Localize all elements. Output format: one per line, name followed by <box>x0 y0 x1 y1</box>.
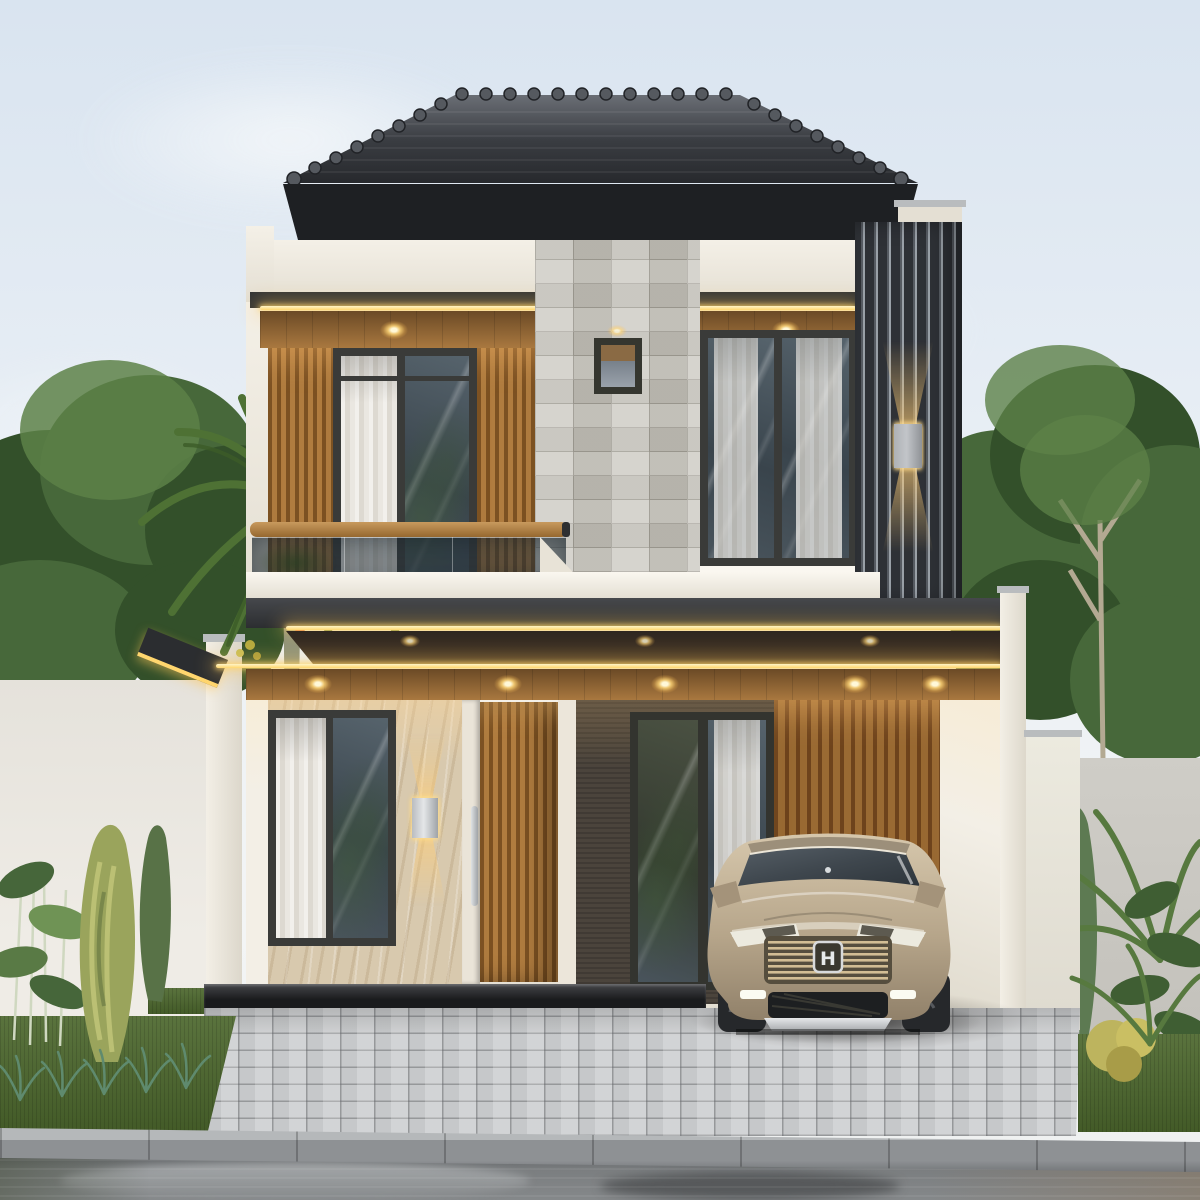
downlight <box>917 672 953 696</box>
mirror-glint <box>825 867 831 873</box>
downlight <box>647 672 683 696</box>
downlight <box>376 318 412 342</box>
left-pillar-cap <box>203 634 245 642</box>
emblem-letter: H <box>820 948 836 970</box>
downlight <box>857 633 883 649</box>
sheer-curtain <box>796 338 842 558</box>
window-1f <box>268 710 396 946</box>
right-lawn-bed <box>1078 1034 1200 1132</box>
low-wall-cap <box>1024 730 1082 737</box>
downlight <box>837 672 873 696</box>
bumper-shadow <box>736 1029 920 1035</box>
led-strip-lower-canopy <box>216 664 1002 668</box>
sheer-curtain <box>714 338 758 558</box>
sheer-curtain <box>276 718 330 938</box>
downlight-glint <box>604 323 630 339</box>
left-gate-pillar <box>206 640 242 1015</box>
entry-step <box>204 984 706 1010</box>
handrail-end-cap <box>562 522 570 537</box>
tree-reflection <box>330 718 388 938</box>
pillar-cap <box>997 586 1029 593</box>
white-band <box>246 572 880 598</box>
tree-reflection <box>638 720 698 982</box>
dark-parapet-band <box>246 598 1004 628</box>
balcony-handrail <box>250 522 568 537</box>
glass-pane <box>638 720 698 982</box>
downlight <box>300 672 336 696</box>
window-glass <box>330 718 388 938</box>
door-handle <box>471 806 478 906</box>
right-boundary-wall <box>1078 758 1200 1048</box>
stone-wall-small-window <box>594 338 642 394</box>
entry-sconce <box>412 798 438 838</box>
right-low-wall <box>1026 736 1080 1030</box>
led-strip-upper-canopy <box>286 626 1002 630</box>
downlight <box>632 633 658 649</box>
entry-door <box>480 702 558 982</box>
window-mullion <box>326 718 333 938</box>
window-2f-right <box>700 330 857 566</box>
lower-canopy-soffit <box>246 669 1004 700</box>
right-block-cap <box>894 200 966 207</box>
window-transom <box>341 376 469 381</box>
right-end-pillar <box>1000 592 1026 1014</box>
wall-sconce <box>894 424 922 468</box>
window-glass <box>782 338 849 558</box>
window-glass <box>708 338 774 558</box>
pilaster-left <box>246 700 270 1008</box>
suv-car: H <box>702 824 954 1036</box>
white-strip <box>558 700 576 1002</box>
cloud <box>80 60 500 220</box>
drl-right <box>890 990 916 999</box>
drl-left <box>740 990 766 999</box>
architectural-render: H <box>0 0 1200 1200</box>
window-mullion <box>774 338 782 558</box>
downlight <box>397 633 423 649</box>
left-lawn-bed <box>0 1016 236 1132</box>
downlight <box>490 672 526 696</box>
parapet-step <box>246 226 274 302</box>
